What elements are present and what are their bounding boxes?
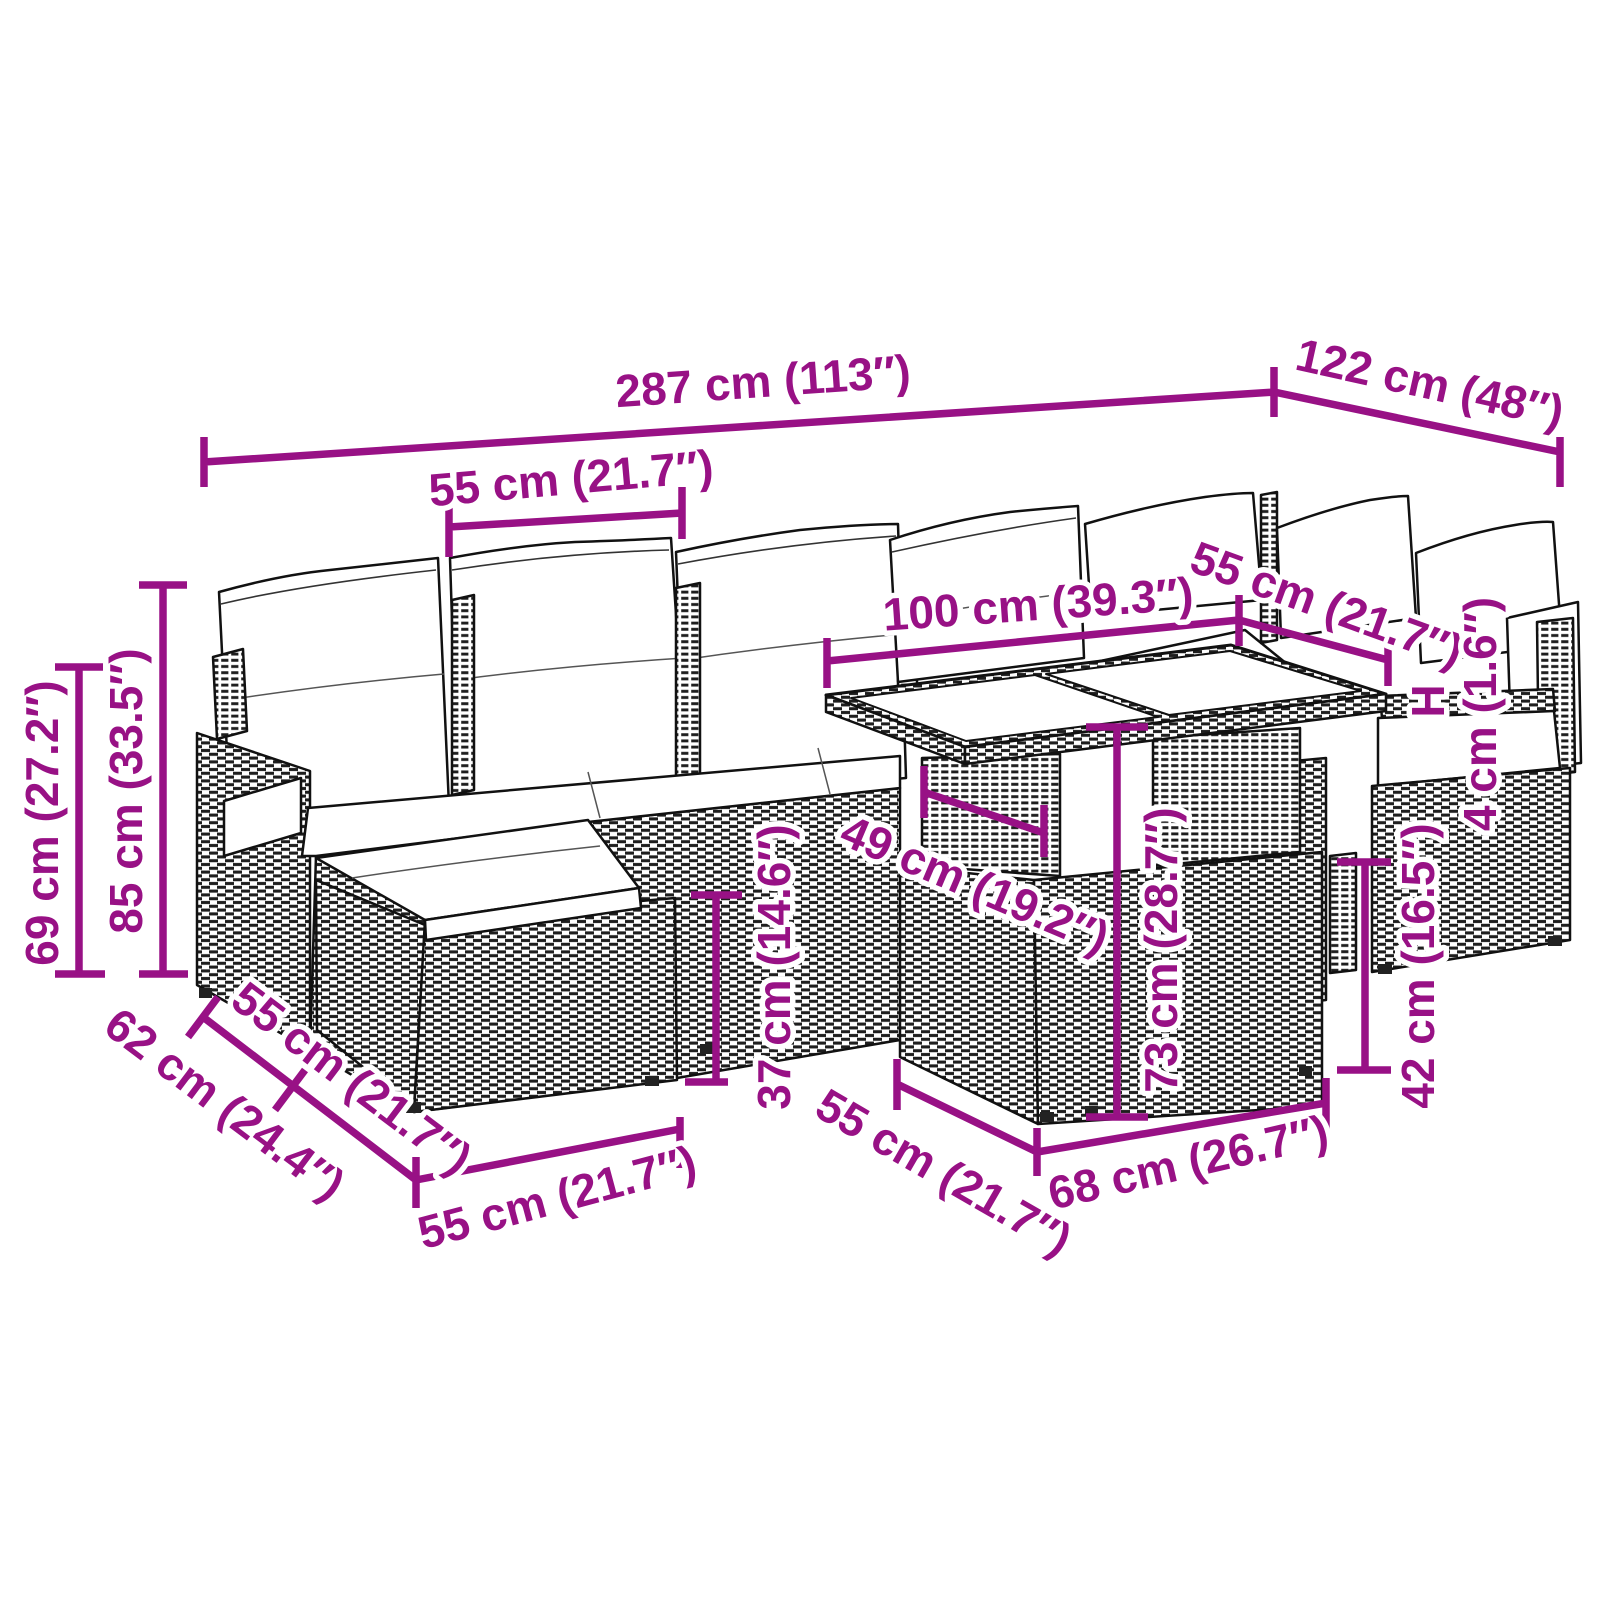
svg-text:37 cm (14.6″): 37 cm (14.6″) [748, 824, 800, 1109]
svg-text:73 cm (28.7″): 73 cm (28.7″) [1135, 807, 1187, 1092]
svg-text:85 cm (33.5″): 85 cm (33.5″) [100, 648, 152, 933]
svg-text:69 cm (27.2″): 69 cm (27.2″) [16, 680, 68, 965]
svg-text:42 cm (16.5″): 42 cm (16.5″) [1392, 823, 1444, 1108]
svg-text:H: H [1402, 684, 1454, 717]
svg-text:4 cm (1.6″): 4 cm (1.6″) [1454, 597, 1506, 831]
